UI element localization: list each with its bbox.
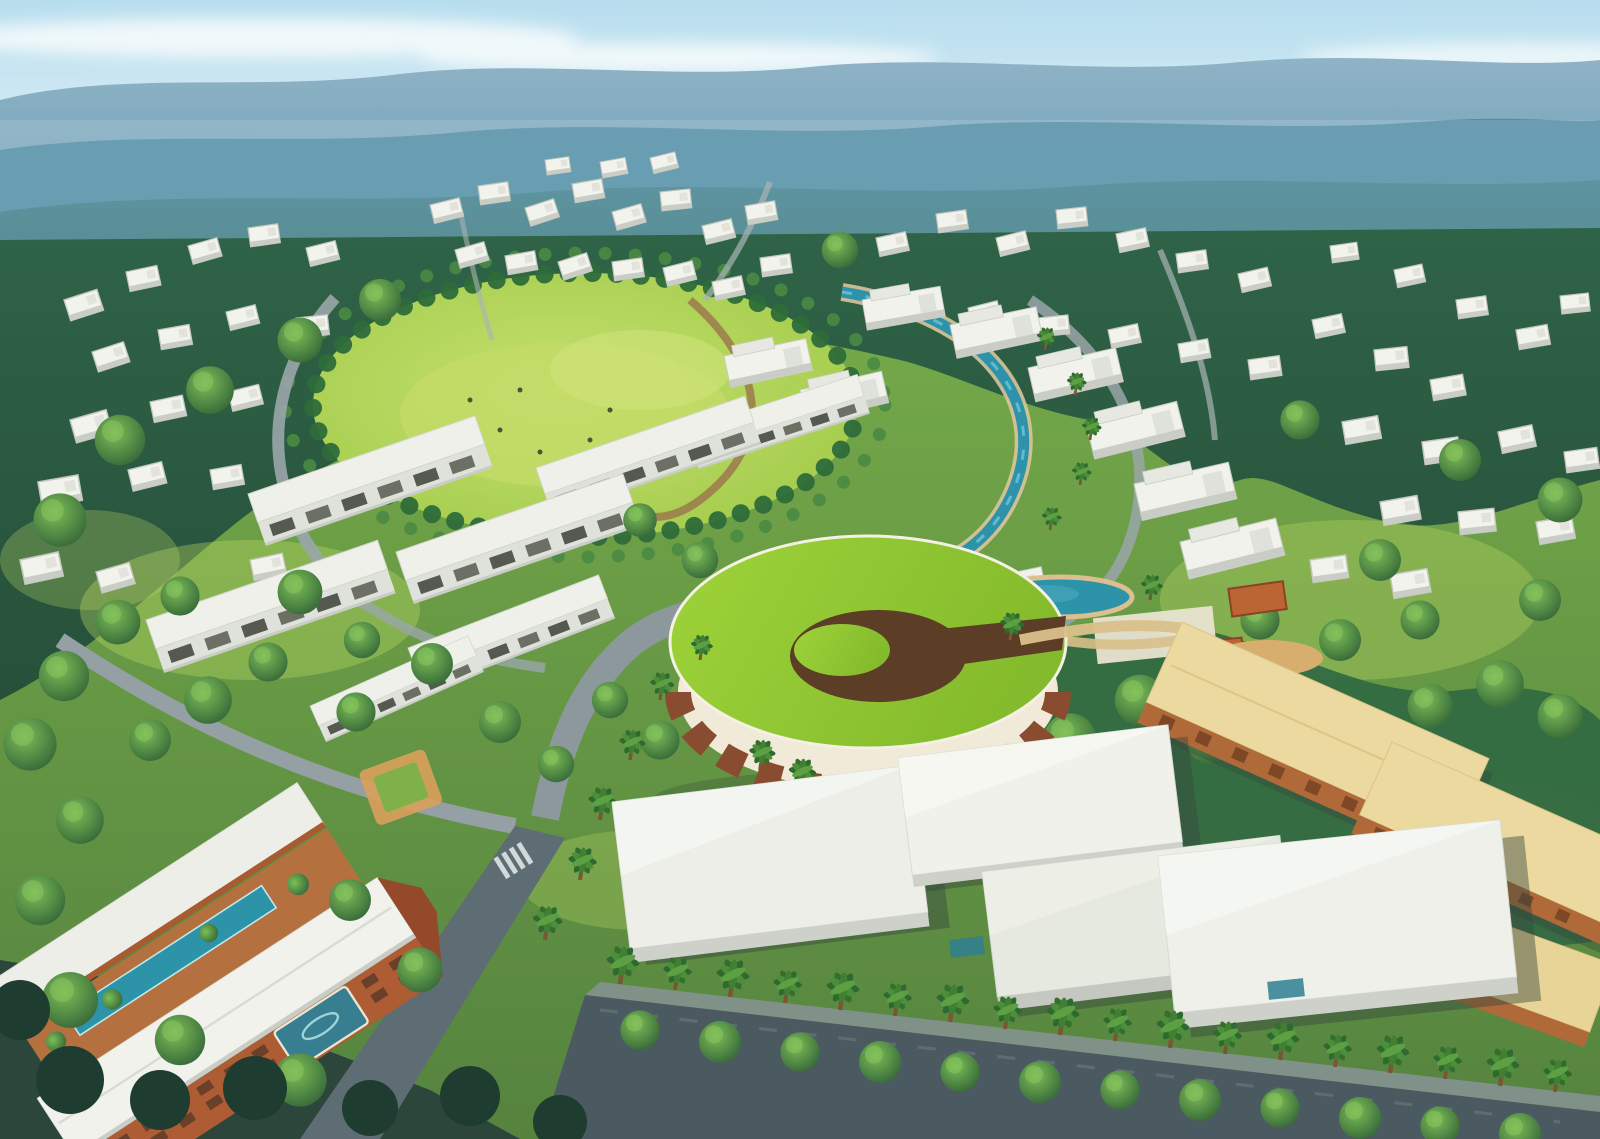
aerial-city-render: [0, 0, 1600, 1139]
storefront-glass: [1267, 978, 1305, 1000]
render-canvas: [0, 0, 1600, 1139]
retail-building: [1158, 818, 1541, 1039]
roof-island: [794, 624, 890, 676]
